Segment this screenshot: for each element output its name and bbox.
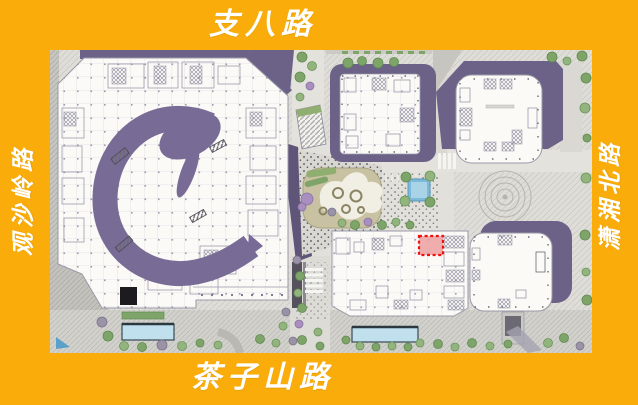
- highlight-marker: [419, 236, 443, 255]
- road-label-top: 支八路: [63, 8, 463, 42]
- road-label-bottom: 茶子山路: [63, 361, 463, 395]
- mall-building: [58, 50, 294, 310]
- site-plan-map: [50, 50, 592, 353]
- retail-building-north: [330, 64, 436, 162]
- plaza-water-feature: [408, 179, 430, 201]
- screenshot-root: { "frame": { "background_color": "#FAAD0…: [0, 0, 638, 405]
- tower-building-northeast: [436, 61, 563, 163]
- road-label-left: 观沙岭路: [0, 120, 52, 280]
- mall-entrance-dark: [120, 287, 137, 305]
- site-plan-svg: [50, 50, 592, 353]
- retail-building-south: [332, 231, 468, 316]
